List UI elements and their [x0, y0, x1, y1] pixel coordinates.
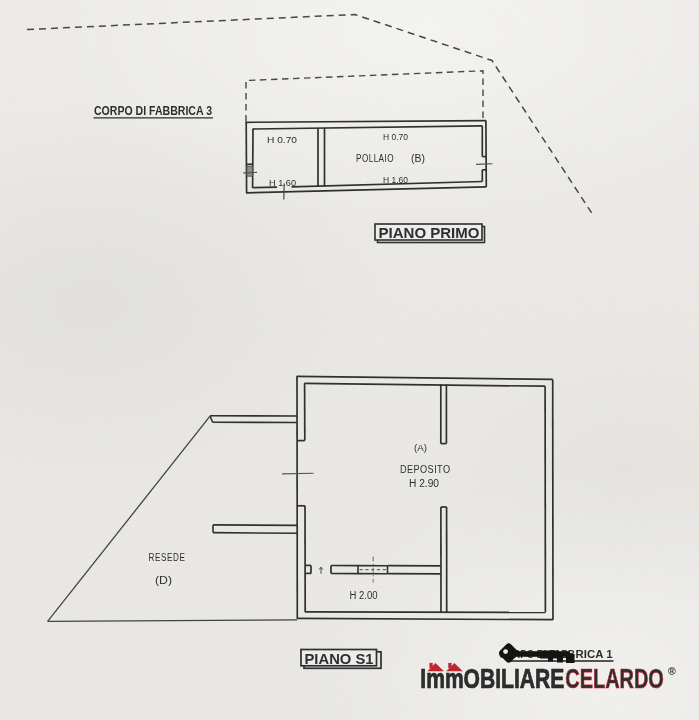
svg-text:H 0.70: H 0.70 [383, 131, 408, 142]
svg-text:RICA 1: RICA 1 [576, 648, 613, 660]
svg-text:H 2.00: H 2.00 [350, 590, 378, 601]
svg-text:H 2.90: H 2.90 [409, 478, 439, 489]
svg-text:CORPO DI FABBRICA 3: CORPO DI FABBRICA 3 [94, 103, 212, 118]
svg-text:(D): (D) [155, 574, 172, 586]
svg-text:PIANO S1: PIANO S1 [305, 650, 374, 667]
svg-text:POLLAIO: POLLAIO [356, 152, 394, 164]
svg-text:RESEDE: RESEDE [149, 551, 186, 563]
svg-text:H 1.60: H 1.60 [269, 177, 296, 188]
svg-text:H 1.60: H 1.60 [383, 174, 408, 185]
svg-text:®: ® [668, 665, 676, 677]
svg-text:(A): (A) [414, 443, 427, 453]
svg-text:(B): (B) [411, 152, 425, 164]
svg-text:H 0.70: H 0.70 [267, 134, 297, 145]
svg-text:CELARDO: CELARDO [565, 663, 664, 694]
svg-text:PIANO PRIMO: PIANO PRIMO [379, 224, 480, 241]
svg-text:DEPOSITO: DEPOSITO [400, 463, 451, 475]
svg-text:ImmOBILIARE: ImmOBILIARE [420, 663, 564, 694]
